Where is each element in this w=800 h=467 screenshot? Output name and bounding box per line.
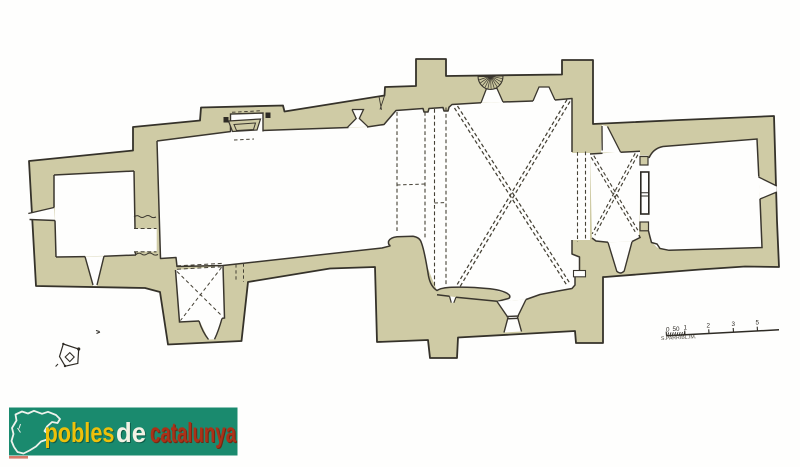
svg-text:de: de	[116, 417, 146, 448]
svg-text:1: 1	[684, 325, 688, 332]
svg-text:0: 0	[666, 327, 670, 334]
svg-text:2: 2	[707, 323, 711, 330]
svg-text:5: 5	[756, 320, 760, 327]
svg-text:pobles: pobles	[45, 417, 115, 448]
svg-text:50: 50	[673, 326, 681, 333]
svg-text:catalunya: catalunya	[150, 417, 236, 448]
svg-text:3: 3	[732, 321, 736, 328]
